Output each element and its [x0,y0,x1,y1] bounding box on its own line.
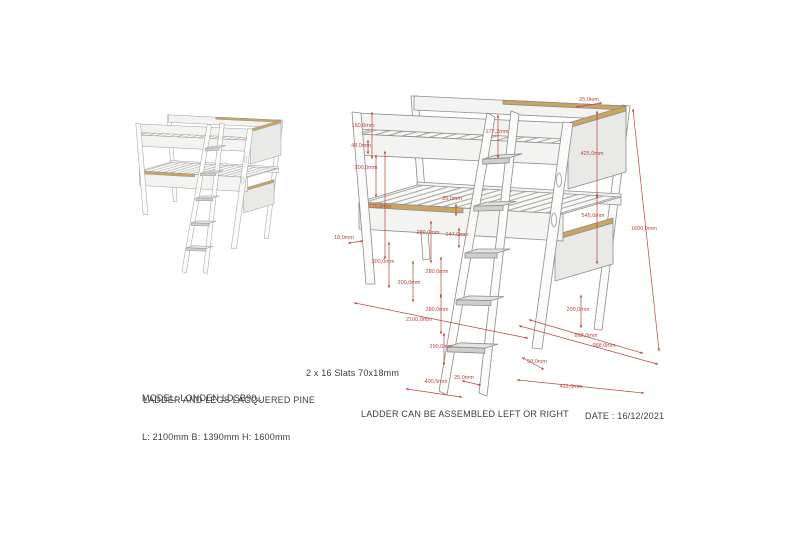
dimension-label: 2100,0mm [406,317,432,323]
dimension-label: 177,2mm [486,129,509,135]
dimension-label: 770,0mm [369,204,392,210]
dimension-label: 200,0mm [355,165,378,171]
dimension-label: 280,0mm [426,307,449,313]
dimension-label: 160,0mm [352,123,375,129]
dimension-label: 422,0mm [560,384,583,390]
dimension-label: 280,0mm [426,269,449,275]
dimension-label: 200,0mm [398,280,421,286]
dimension-label: 25,0mm [454,375,474,381]
bunk-bed-dimensioned-view [352,96,630,396]
dimension-label: 18,0mm [334,235,354,241]
dimension-label: 290,0mm [430,344,453,350]
dimension-label: 425,0mm [581,151,604,157]
dimension-label: 280,0mm [417,230,440,236]
dimension-label: 868,0mm [575,333,598,339]
bunk-bed-isometric-small [136,115,283,274]
dimension-label: 400,5mm [425,379,448,385]
slats-note: 2 x 16 Slats 70x18mm [306,367,399,380]
dimension-label: 968,0mm [593,343,616,349]
model-info: MODEL: LONDEN LDSB90.. L: 2100mm B: 1390… [142,366,290,470]
assembly-note: LADDER CAN BE ASSEMBLED LEFT OR RIGHT [361,408,569,421]
dimension-label: 25,0mm [579,97,599,103]
dimension-label: 50,0mm [527,359,547,365]
date-label: DATE : 16/12/2021 [585,410,664,423]
dimension-label: 200,0mm [567,307,590,313]
dimension-label: 300,0mm [372,259,395,265]
material-note: LADDER AND LEGS LACQUERED PINE [143,394,315,407]
dimension-label: 25,0mm [442,196,462,202]
dimension-label: 1600,0mm [631,226,657,232]
model-size: L: 2100mm B: 1390mm H: 1600mm [142,431,290,444]
bunk-bed-drawing-canvas: 160,0mm48,0mm200,0mm770,0mm18,0mm300,0mm… [0,0,800,533]
dimension-label: 147,0mm [446,232,469,238]
dimension-label: 48,0mm [351,143,371,149]
dimension-label: 545,0mm [582,213,605,219]
